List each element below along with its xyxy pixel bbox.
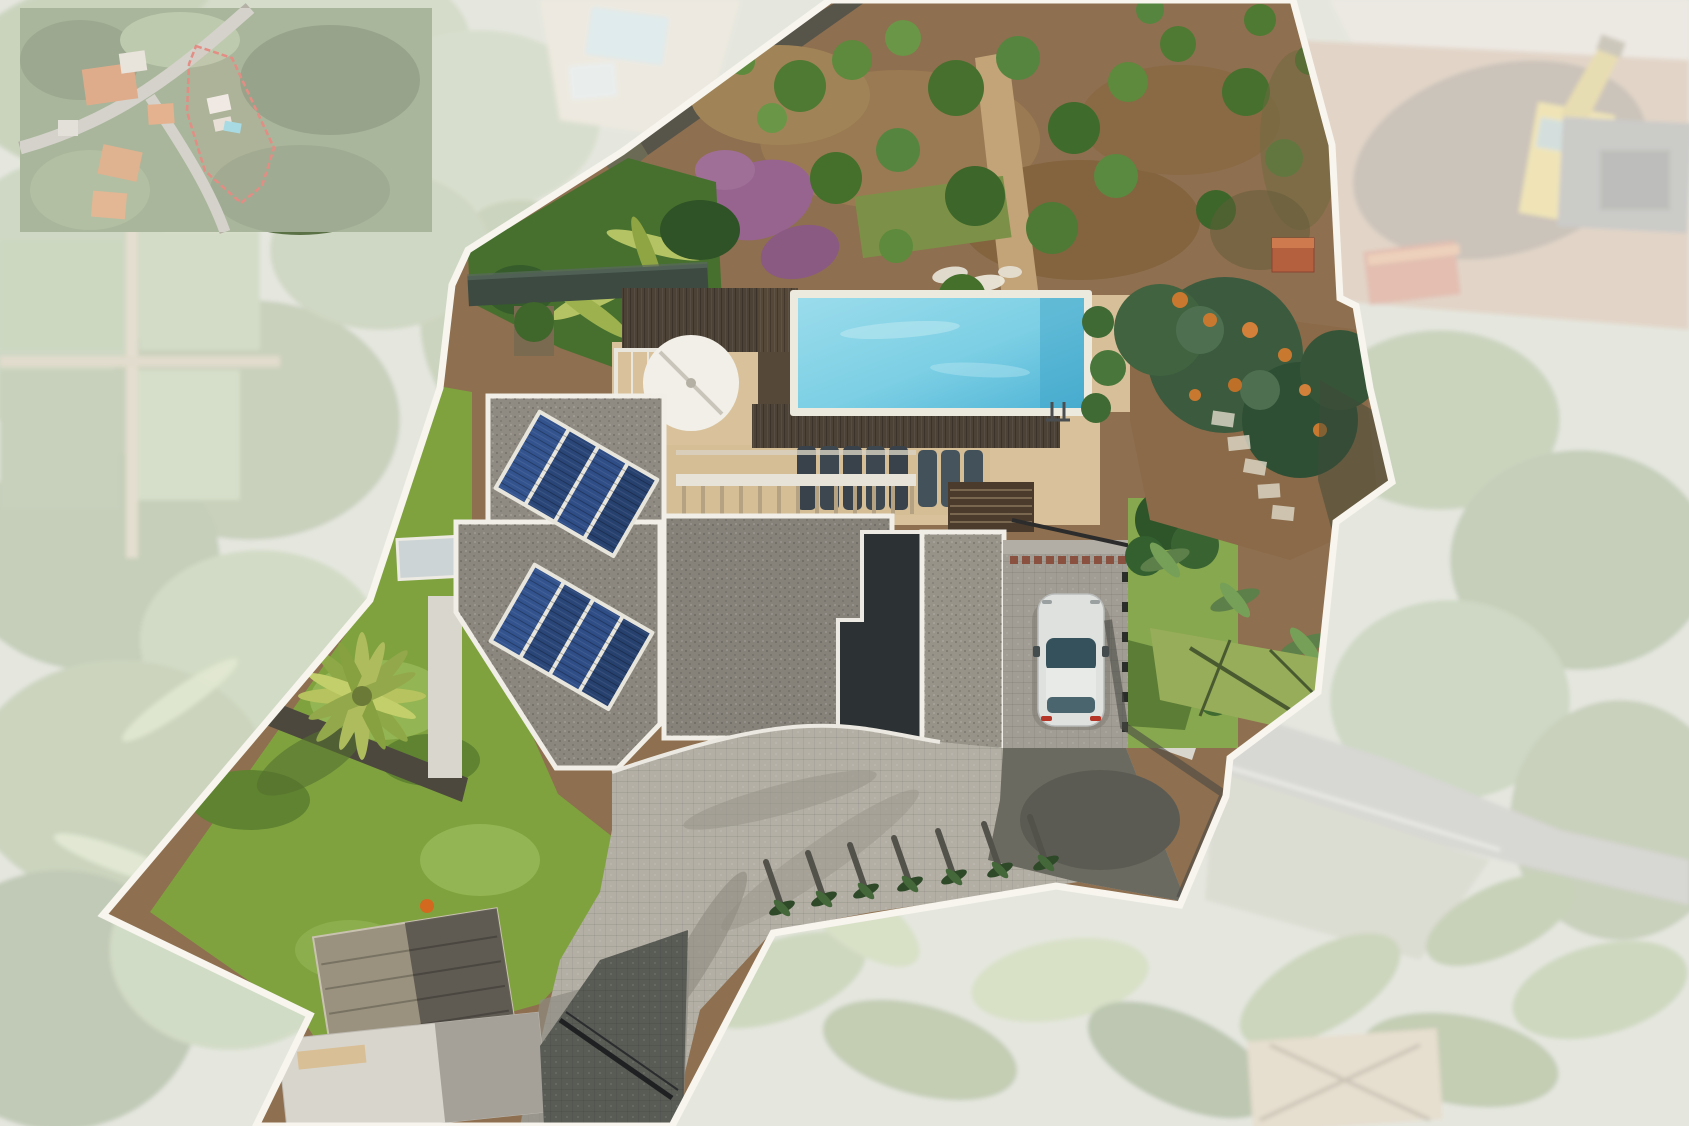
- dark-foliage: [660, 200, 740, 260]
- palm-crown: [352, 686, 372, 706]
- white-flower-bed: [998, 266, 1022, 278]
- car-taillight: [1090, 716, 1101, 721]
- dragon-tree-texture: [1176, 306, 1224, 354]
- roof-block-e-texture: [924, 534, 1002, 748]
- pergola-top-rail: [676, 450, 916, 455]
- pergola-post: [739, 486, 743, 514]
- car-windshield: [1046, 638, 1096, 672]
- traffic-cone: [420, 899, 434, 913]
- dragon-flower: [1172, 292, 1188, 308]
- car-mirror: [1033, 646, 1040, 657]
- shrub: [876, 128, 920, 172]
- car-headlight: [1042, 600, 1052, 604]
- car-headlight: [1090, 600, 1100, 604]
- dragon-flower: [1228, 378, 1242, 392]
- dragon-flower: [1278, 348, 1292, 362]
- shrub: [879, 229, 913, 263]
- west-facade: [428, 596, 462, 778]
- pergola-post: [834, 486, 838, 514]
- shrub: [945, 166, 1005, 226]
- planter-bush: [514, 302, 554, 342]
- dragon-flower: [1299, 384, 1311, 396]
- pergola-post: [720, 486, 724, 514]
- shrub: [1160, 26, 1196, 62]
- car-roof: [1046, 668, 1096, 700]
- shrub: [774, 60, 826, 112]
- pergola-beam: [676, 474, 916, 486]
- outbuilding-roof-shadow: [435, 1012, 549, 1122]
- aerial-drone-photo-of-villa-plot: [0, 0, 1689, 1126]
- pergola-post: [682, 486, 686, 514]
- pergola-post: [891, 486, 895, 514]
- dragon-tree-texture: [1240, 370, 1280, 410]
- shrub: [1108, 62, 1148, 102]
- pergola-post: [815, 486, 819, 514]
- skylight: [397, 537, 457, 580]
- car-mirror: [1102, 646, 1109, 657]
- shrub: [996, 36, 1040, 80]
- shrub: [885, 20, 921, 56]
- stepping-stone: [1258, 483, 1281, 499]
- pergola-post: [758, 486, 762, 514]
- shrub: [1094, 154, 1138, 198]
- pergola-post: [777, 486, 781, 514]
- shrub: [1026, 202, 1078, 254]
- dragon-flower: [1203, 313, 1217, 327]
- pergola-post: [701, 486, 705, 514]
- lawn-light-patch: [420, 824, 540, 896]
- terracotta-container-top: [1272, 238, 1314, 248]
- inset-fade-overlay: [20, 8, 432, 232]
- inset-fade-layer: [20, 8, 432, 232]
- dragon-flower: [1242, 322, 1258, 338]
- poolside-bush: [1090, 350, 1126, 386]
- shrub: [1048, 102, 1100, 154]
- pergola-post: [853, 486, 857, 514]
- shrub: [810, 152, 862, 204]
- dragon-flower: [1189, 389, 1201, 401]
- shrub: [757, 103, 787, 133]
- car-rear-window: [1047, 697, 1095, 713]
- pergola-post: [872, 486, 876, 514]
- stepping-stone: [1227, 435, 1250, 451]
- shrub: [1244, 4, 1276, 36]
- shrub: [832, 40, 872, 80]
- sun-lounger: [918, 450, 937, 507]
- parasol-hub: [686, 378, 696, 388]
- stepping-stone: [1271, 505, 1294, 521]
- poolside-bush: [1082, 306, 1114, 338]
- shrub: [928, 60, 984, 116]
- pergola-post: [796, 486, 800, 514]
- scene-canvas: [0, 0, 1689, 1126]
- poolside-bush: [1081, 393, 1111, 423]
- pool-deep-end: [1040, 298, 1084, 408]
- car-taillight: [1041, 716, 1052, 721]
- pergola-post: [910, 486, 914, 514]
